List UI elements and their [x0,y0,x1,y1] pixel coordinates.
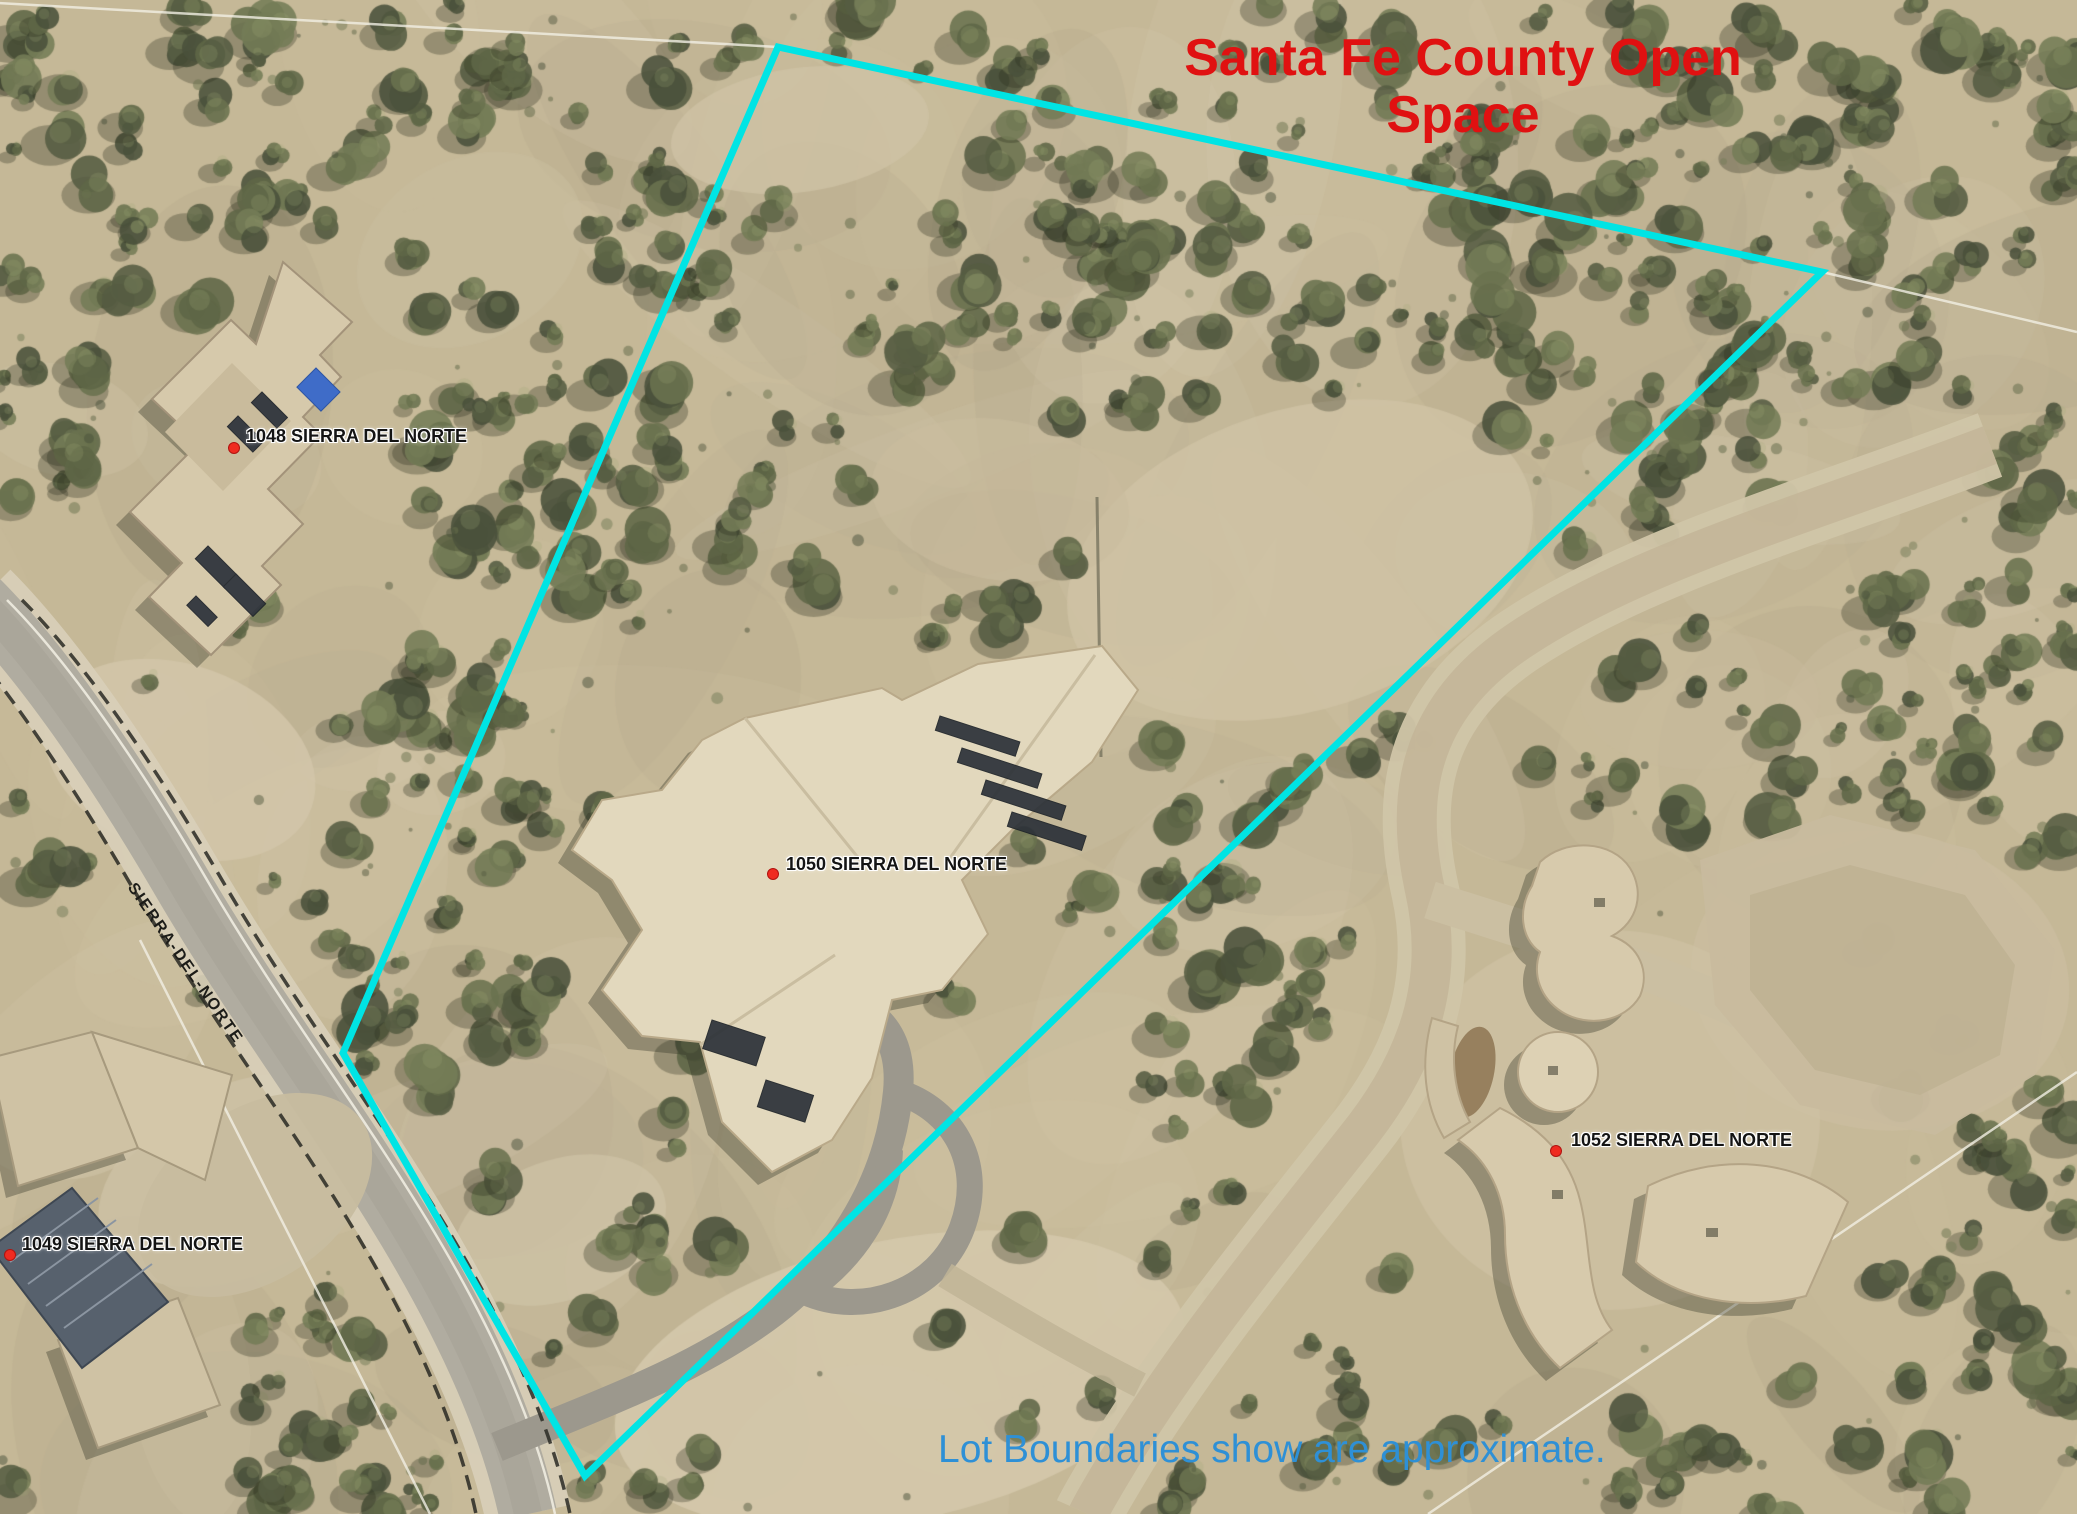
parcel-label-1050: 1050 SIERRA DEL NORTE [786,854,1007,875]
house-1048 [116,262,352,668]
house-1050 [558,646,1138,1185]
survey-line-right [1822,272,2077,332]
parcel-label-1049: 1049 SIERRA DEL NORTE [22,1234,243,1255]
open-space-title: Santa Fe County Open Space [1118,30,1808,144]
survey-line-top [0,2,778,47]
parcel-label-1048: 1048 SIERRA DEL NORTE [246,426,467,447]
aerial-parcel-map: Santa Fe County Open Space 1048 SIERRA D… [0,0,2077,1514]
parcel-marker-1050 [768,869,779,880]
parcel-marker-1049 [5,1250,16,1261]
boundary-disclaimer: Lot Boundaries show are approximate. [938,1428,1606,1472]
parcel-marker-1052 [1551,1146,1562,1157]
parcel-marker-1048 [229,443,240,454]
map-overlay [0,0,2077,1514]
parcel-label-1052: 1052 SIERRA DEL NORTE [1571,1130,1792,1151]
